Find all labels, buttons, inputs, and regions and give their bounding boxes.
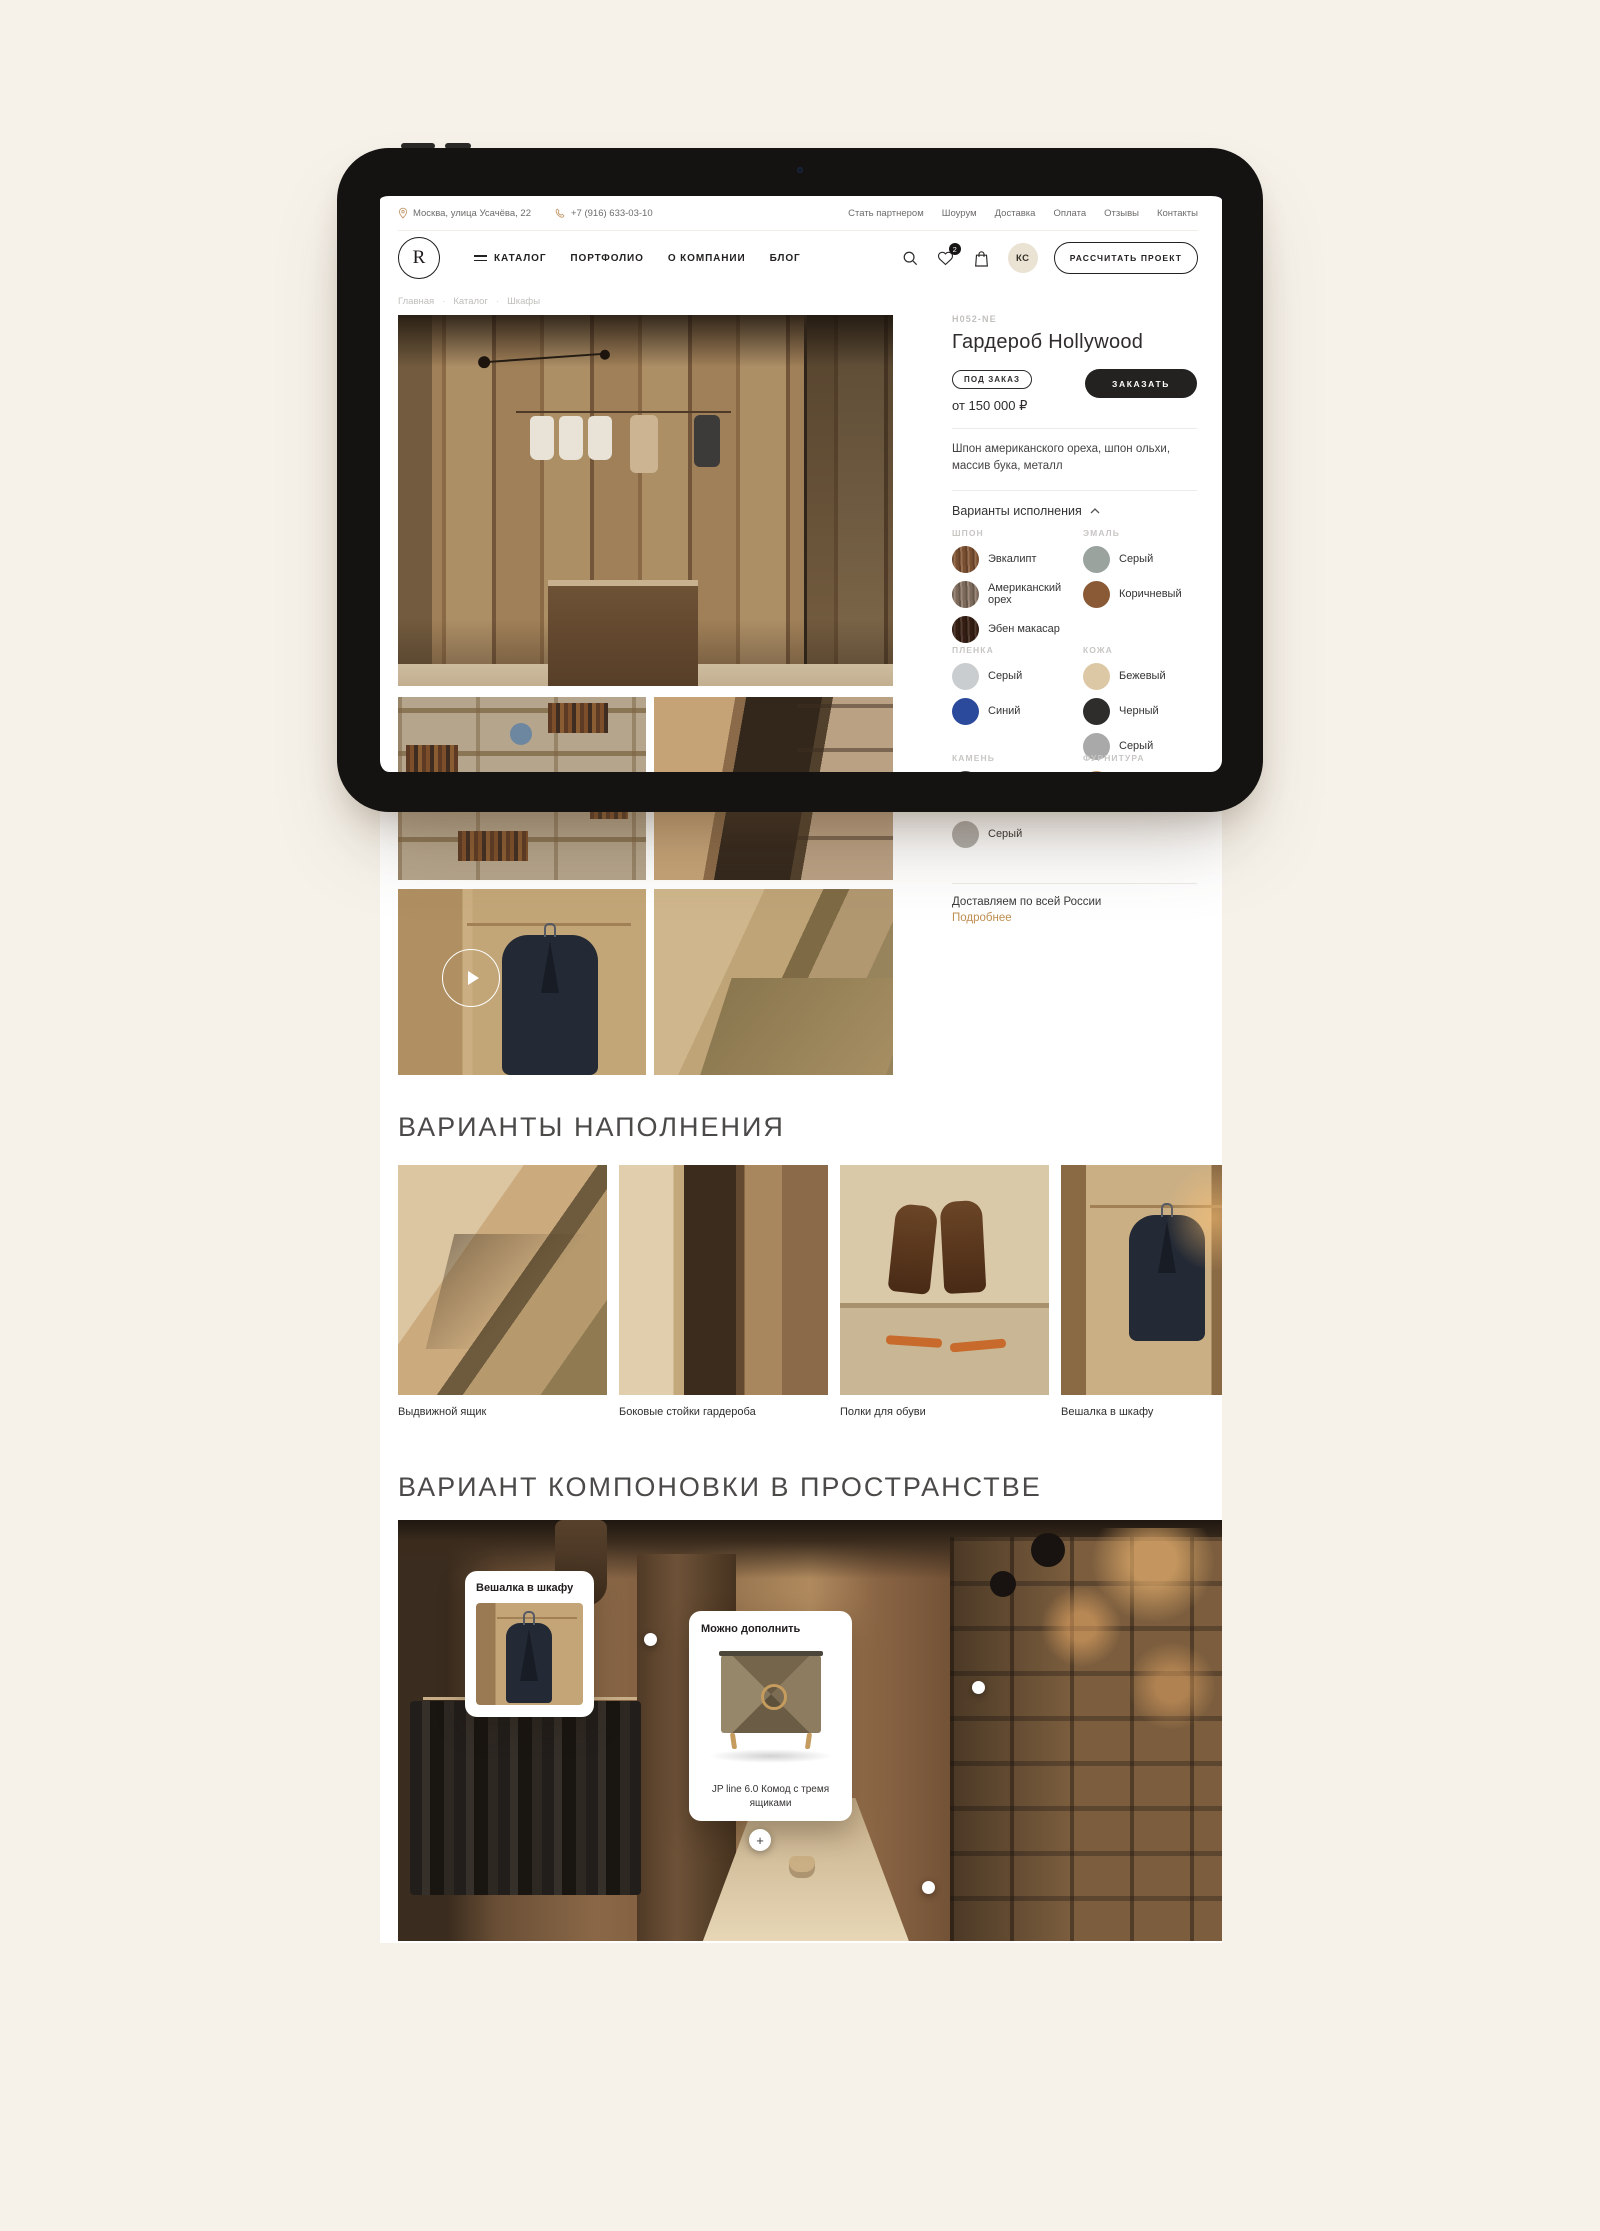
address-item: Москва, улица Усачёва, 22 [398,207,531,219]
swatch-option[interactable]: Синий [952,698,1070,725]
calculate-project-button[interactable]: РАССЧИТАТЬ ПРОЕКТ [1054,242,1198,274]
material-swatch[interactable] [952,821,979,848]
photo-decor [506,1623,552,1703]
material-swatch[interactable] [1083,771,1110,798]
material-swatch[interactable] [952,616,979,643]
variants-title: Варианты исполнения [952,504,1082,518]
search-icon [902,250,918,266]
room-hotspot[interactable] [972,1681,985,1694]
room-hotspot[interactable] [644,1633,657,1646]
swatch-label: Эвкалипт [988,553,1036,565]
hotspot-card-hanger[interactable]: Вешалка в шкафу [465,1571,594,1717]
suggestion-card[interactable]: Можно дополнить JP line 6.0 Комод с трем… [689,1611,852,1821]
product-title: Гардероб Hollywood [952,331,1197,354]
top-links: Стать партнером Шоурум Доставка Оплата О… [848,208,1198,219]
material-swatch[interactable] [952,663,979,690]
favorites-button[interactable]: 2 [936,248,956,268]
material-swatch[interactable] [952,698,979,725]
top-link-showroom[interactable]: Шоурум [942,208,977,219]
breadcrumb: Главная Каталог Шкафы [398,296,540,307]
product-photo-shelves[interactable] [398,697,646,880]
filling-item[interactable]: Боковые стойки гардероба [619,1165,828,1443]
variant-group-veneer: ШПОН Эвкалипт Американский орех Эбен мак… [952,528,1070,643]
photo-decor [950,1339,1007,1353]
swatch-option[interactable]: Бежевый [952,771,1070,798]
swatch-option[interactable]: Эбен макасар [952,616,1070,643]
top-link-contacts[interactable]: Контакты [1157,208,1198,219]
swatch-option[interactable]: Эвкалипт [952,546,1070,573]
photo-decor [398,315,432,686]
swatch-label: Черный [1119,705,1159,717]
cart-button[interactable] [972,248,992,268]
variant-group-hardware: ФУРНИТУРА Латунь [1083,753,1201,798]
logo[interactable]: R [398,237,440,279]
divider [952,883,1197,884]
suggestion-card-title: Можно дополнить [701,1623,840,1635]
product-photo-drawer[interactable] [654,889,893,1075]
play-button[interactable] [442,949,500,1007]
group-label: ШПОН [952,528,1070,538]
material-swatch[interactable] [952,546,979,573]
photo-decor [709,1749,833,1763]
product-video-preview[interactable] [398,889,646,1075]
chevron-up-icon [1090,508,1100,514]
swatch-option[interactable]: Латунь [1083,771,1201,798]
photo-decor [630,415,658,473]
avatar-initials: КС [1016,253,1030,264]
divider [952,428,1197,429]
photo-decor [548,703,608,733]
availability-badge: ПОД ЗАКАЗ [952,370,1032,389]
material-swatch[interactable] [1083,698,1110,725]
top-link-payment[interactable]: Оплата [1053,208,1086,219]
top-info-bar: Москва, улица Усачёва, 22 +7 (916) 633-0… [398,196,1198,231]
swatch-label: Бежевый [988,778,1035,790]
nav-item-portfolio[interactable]: ПОРТФОЛИО [570,253,643,264]
nav-item-about[interactable]: О КОМПАНИИ [668,253,746,264]
photo-decor [888,1203,939,1295]
tablet-volume-button [401,143,435,149]
photo-decor [548,580,698,686]
photo-decor [502,935,598,1075]
group-label: ПЛЕНКА [952,645,1070,655]
filling-item[interactable]: Полки для обуви [840,1165,1049,1443]
photo-decor [410,1701,641,1895]
breadcrumb-home[interactable]: Главная [398,296,453,307]
variant-group-film: ПЛЕНКА Серый Синий [952,645,1070,725]
photo-decor [940,1200,987,1294]
nav-about-label: О КОМПАНИИ [668,253,746,264]
room-hotspot-plus[interactable]: + [749,1829,771,1851]
delivery-note: Доставляем по всей России [952,896,1197,908]
filling-photo-side-posts[interactable] [619,1165,828,1395]
bag-icon [974,250,989,267]
photo-decor [530,416,554,460]
main-nav: КАТАЛОГ ПОРТФОЛИО О КОМПАНИИ БЛОГ [474,253,801,264]
swatch-label: Эбен макасар [988,623,1060,635]
variant-group-stone: КАМЕНЬ Бежевый Серый [952,753,1070,848]
swatch-label: Бежевый [1119,670,1166,682]
photo-decor [789,1856,815,1878]
nav-catalog-label: КАТАЛОГ [494,253,546,264]
location-pin-icon [398,207,408,219]
tablet-camera [797,167,803,173]
photo-decor [1129,1215,1205,1341]
favorites-count-badge: 2 [949,243,961,255]
swatch-label: Серый [1119,740,1153,752]
filling-carousel: Выдвижной ящик Боковые стойки гардероба … [398,1165,1222,1443]
filling-photo-hanger[interactable] [1061,1165,1222,1395]
suggestion-card-caption: JP line 6.0 Комод с тремя ящиками [701,1783,840,1810]
hotspot-card-photo [476,1603,583,1705]
product-description: Шпон американского ореха, шпон ольхи, ма… [952,441,1197,476]
phone-icon [555,208,566,219]
variant-group-enamel: ЭМАЛЬ Серый Коричневый [1083,528,1201,608]
swatch-label: Серый [988,670,1022,682]
swatch-label: Латунь [1119,778,1155,790]
webpage: Москва, улица Усачёва, 22 +7 (916) 633-0… [380,196,1222,1943]
phone-item[interactable]: +7 (916) 633-03-10 [555,208,653,219]
product-photo-main[interactable] [398,315,893,686]
photo-decor [761,1684,787,1710]
photo-decor [406,745,458,775]
material-swatch[interactable] [952,581,979,608]
group-label: ЭМАЛЬ [1083,528,1201,538]
product-panel: H052-NE Гардероб Hollywood ПОД ЗАКАЗ от … [952,314,1197,924]
hamburger-icon [474,255,487,261]
photo-decor [590,789,628,819]
search-button[interactable] [900,248,920,268]
breadcrumb-catalog[interactable]: Каталог [453,296,507,307]
photo-decor [588,416,612,460]
header-actions: 2 КС РАССЧИТАТЬ ПРОЕКТ [900,242,1198,274]
photo-decor [730,1733,737,1749]
group-label: КАМЕНЬ [952,753,1070,763]
photo-decor [510,723,532,745]
filling-item[interactable]: Выдвижной ящик [398,1165,607,1443]
suggestion-card-photo [701,1639,840,1771]
top-link-delivery[interactable]: Доставка [995,208,1036,219]
room-hotspot[interactable] [922,1881,935,1894]
material-swatch[interactable] [1083,581,1110,608]
photo-decor [804,315,893,686]
breadcrumb-wardrobes: Шкафы [507,296,540,307]
layout-section-title: ВАРИАНТ КОМПОНОВКИ В ПРОСТРАНСТВЕ [398,1472,1042,1503]
group-label: ФУРНИТУРА [1083,753,1201,763]
photo-decor [516,411,731,413]
top-link-partner[interactable]: Стать партнером [848,208,924,219]
swatch-label: Коричневый [1119,588,1182,600]
swatch-option[interactable]: Серый [1083,546,1201,573]
swatch-option[interactable]: Серый [952,663,1070,690]
swatch-option[interactable]: Американский орех [952,581,1070,608]
top-link-reviews[interactable]: Отзывы [1104,208,1139,219]
filling-caption: Выдвижной ящик [398,1406,607,1418]
filling-photo-drawer[interactable] [398,1165,607,1395]
user-avatar[interactable]: КС [1008,243,1038,273]
nav-blog-label: БЛОГ [770,253,801,264]
filling-caption: Боковые стойки гардероба [619,1406,828,1418]
address-text: Москва, улица Усачёва, 22 [413,208,531,219]
nav-item-blog[interactable]: БЛОГ [770,253,801,264]
phone-text: +7 (916) 633-03-10 [571,208,653,219]
product-price: от 150 000 ₽ [952,398,1032,414]
filling-caption: Вешалка в шкафу [1061,1406,1222,1418]
material-swatch[interactable] [1083,546,1110,573]
swatch-label: Синий [988,705,1020,717]
nav-portfolio-label: ПОРТФОЛИО [570,253,643,264]
product-photo-corner[interactable] [654,697,893,880]
photo-decor [1031,1533,1065,1567]
swatch-label: Американский орех [988,582,1070,606]
variants-toggle[interactable]: Варианты исполнения [952,504,1197,518]
filling-section-title: ВАРИАНТЫ НАПОЛНЕНИЯ [398,1112,785,1143]
filling-caption: Полки для обуви [840,1406,1049,1418]
commode-illustration [721,1655,821,1733]
product-sku: H052-NE [952,314,1197,324]
swatch-option[interactable]: Коричневый [1083,581,1201,608]
logo-letter: R [413,247,426,269]
room-composition-photo[interactable]: Вешалка в шкафу Можно дополнить JP line … [398,1520,1222,1941]
filling-item[interactable]: Вешалка в шкафу [1061,1165,1222,1443]
filling-photo-shoe-shelves[interactable] [840,1165,1049,1395]
photo-decor [886,1335,942,1348]
site-header: R КАТАЛОГ ПОРТФОЛИО О КОМПАНИИ БЛОГ 2 КС… [398,230,1198,286]
order-button[interactable]: ЗАКАЗАТЬ [1085,369,1197,398]
photo-decor [458,831,528,861]
material-swatch[interactable] [1083,663,1110,690]
photo-decor [694,415,720,467]
group-label: КОЖА [1083,645,1201,655]
photo-decor [559,416,583,460]
delivery-more-link[interactable]: Подробнее [952,912,1197,924]
tablet-volume-button [445,143,471,149]
variant-groups: ШПОН Эвкалипт Американский орех Эбен мак… [952,528,1197,869]
swatch-label: Серый [988,828,1022,840]
material-swatch[interactable] [952,771,979,798]
nav-item-catalog[interactable]: КАТАЛОГ [474,253,546,264]
cta-label: РАССЧИТАТЬ ПРОЕКТ [1070,253,1182,263]
photo-decor [805,1733,812,1749]
swatch-label: Серый [1119,553,1153,565]
photo-decor [909,1528,1222,1856]
divider [952,490,1197,491]
swatch-option[interactable]: Серый [952,821,1070,848]
photo-decor [990,1571,1016,1597]
photo-decor [484,353,604,363]
hotspot-card-title: Вешалка в шкафу [476,1582,583,1594]
variant-group-leather: КОЖА Бежевый Черный Серый [1083,645,1201,760]
swatch-option[interactable]: Черный [1083,698,1201,725]
swatch-option[interactable]: Бежевый [1083,663,1201,690]
